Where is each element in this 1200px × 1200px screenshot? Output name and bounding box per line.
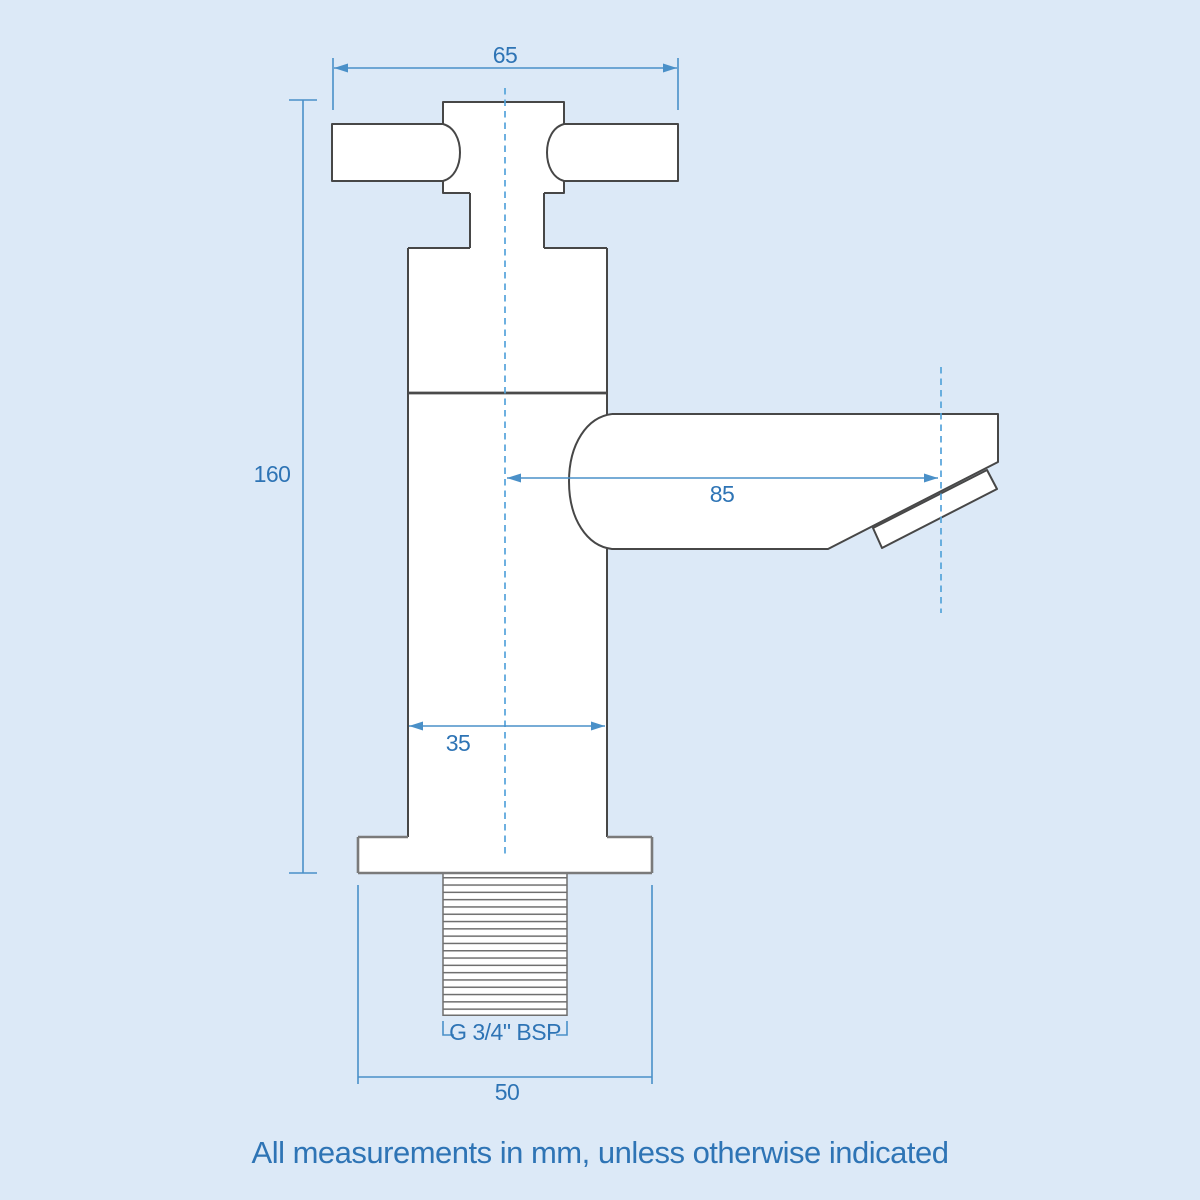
handle-stem-fill (470, 193, 544, 248)
spout-fill (569, 414, 998, 549)
dimension-overall-height: 160 (254, 100, 317, 873)
tap-silhouette-fills (332, 102, 998, 1016)
dimension-label-160: 160 (254, 461, 291, 487)
measurements-note: All measurements in mm, unless otherwise… (252, 1135, 949, 1170)
dimension-label-85: 85 (710, 481, 735, 507)
arrowhead-right-65 (663, 64, 677, 73)
dimension-label-50: 50 (495, 1079, 520, 1105)
arrowhead-left-65 (334, 64, 348, 73)
dimension-label-35: 35 (446, 730, 471, 756)
thread-spec-label: G 3/4" BSP (449, 1019, 561, 1045)
dimension-label-65: 65 (493, 42, 518, 68)
threaded-shank (443, 874, 567, 1016)
faucet-technical-diagram: 65 160 85 35 50 G 3/4" BSP All measureme… (0, 0, 1200, 1200)
thread-spec: G 3/4" BSP (443, 1019, 567, 1045)
base-flange-fill (358, 837, 652, 873)
tap-body-fill (408, 248, 607, 837)
thread-lines (443, 874, 567, 1016)
